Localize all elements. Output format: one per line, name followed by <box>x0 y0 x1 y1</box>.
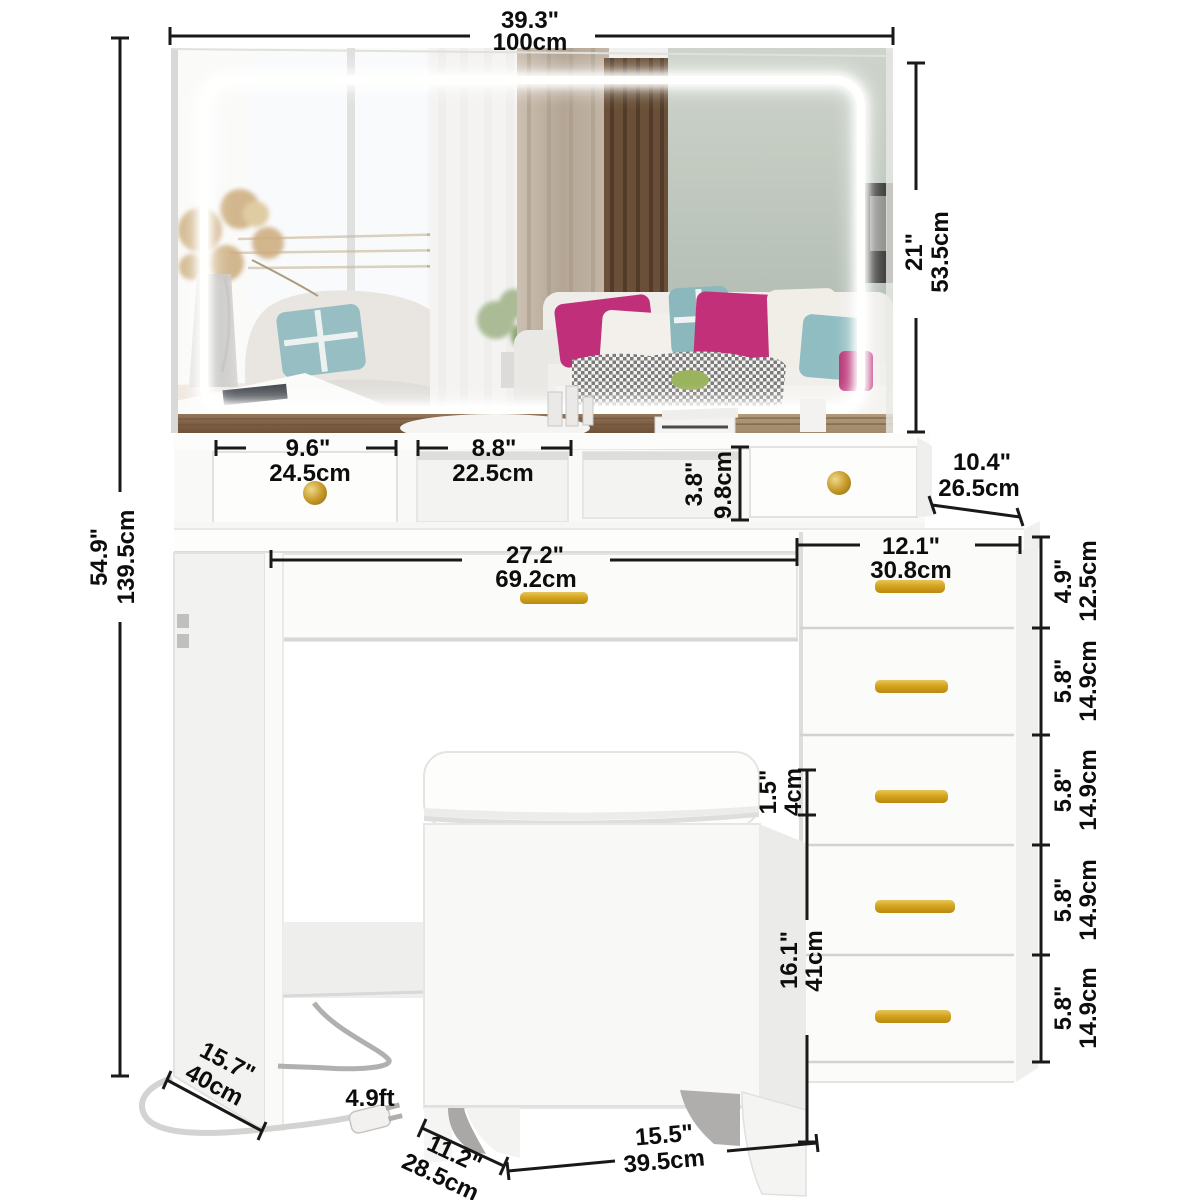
svg-text:8.8": 8.8" <box>472 435 517 462</box>
svg-text:5.8": 5.8" <box>1050 986 1077 1031</box>
svg-text:5.8": 5.8" <box>1050 878 1077 923</box>
svg-text:41cm: 41cm <box>801 930 828 991</box>
svg-text:5.8": 5.8" <box>1050 768 1077 813</box>
svg-text:4cm: 4cm <box>780 768 807 816</box>
svg-text:27.2": 27.2" <box>506 542 564 569</box>
svg-text:21": 21" <box>901 233 928 271</box>
svg-text:54.9": 54.9" <box>86 528 113 586</box>
svg-text:14.9cm: 14.9cm <box>1075 967 1102 1048</box>
svg-text:69.2cm: 69.2cm <box>495 566 576 593</box>
svg-text:24.5cm: 24.5cm <box>269 460 350 487</box>
svg-text:30.8cm: 30.8cm <box>870 557 951 584</box>
svg-text:3.8": 3.8" <box>681 462 708 507</box>
svg-text:139.5cm: 139.5cm <box>113 510 140 605</box>
svg-text:9.6": 9.6" <box>286 435 331 462</box>
svg-text:53.5cm: 53.5cm <box>927 211 954 292</box>
svg-text:22.5cm: 22.5cm <box>452 460 533 487</box>
svg-text:14.9cm: 14.9cm <box>1075 749 1102 830</box>
svg-text:9.8cm: 9.8cm <box>710 451 737 519</box>
svg-text:12.1": 12.1" <box>882 533 940 560</box>
svg-text:1.5": 1.5" <box>755 770 782 815</box>
svg-text:5.8": 5.8" <box>1050 659 1077 704</box>
svg-text:26.5cm: 26.5cm <box>938 475 1019 502</box>
svg-text:10.4": 10.4" <box>953 449 1011 476</box>
svg-text:16.1": 16.1" <box>776 931 803 989</box>
svg-text:12.5cm: 12.5cm <box>1075 540 1102 621</box>
svg-text:14.9cm: 14.9cm <box>1075 640 1102 721</box>
svg-text:100cm: 100cm <box>493 29 568 56</box>
svg-text:4.9ft: 4.9ft <box>345 1085 394 1112</box>
svg-text:14.9cm: 14.9cm <box>1075 859 1102 940</box>
svg-text:4.9": 4.9" <box>1050 559 1077 604</box>
